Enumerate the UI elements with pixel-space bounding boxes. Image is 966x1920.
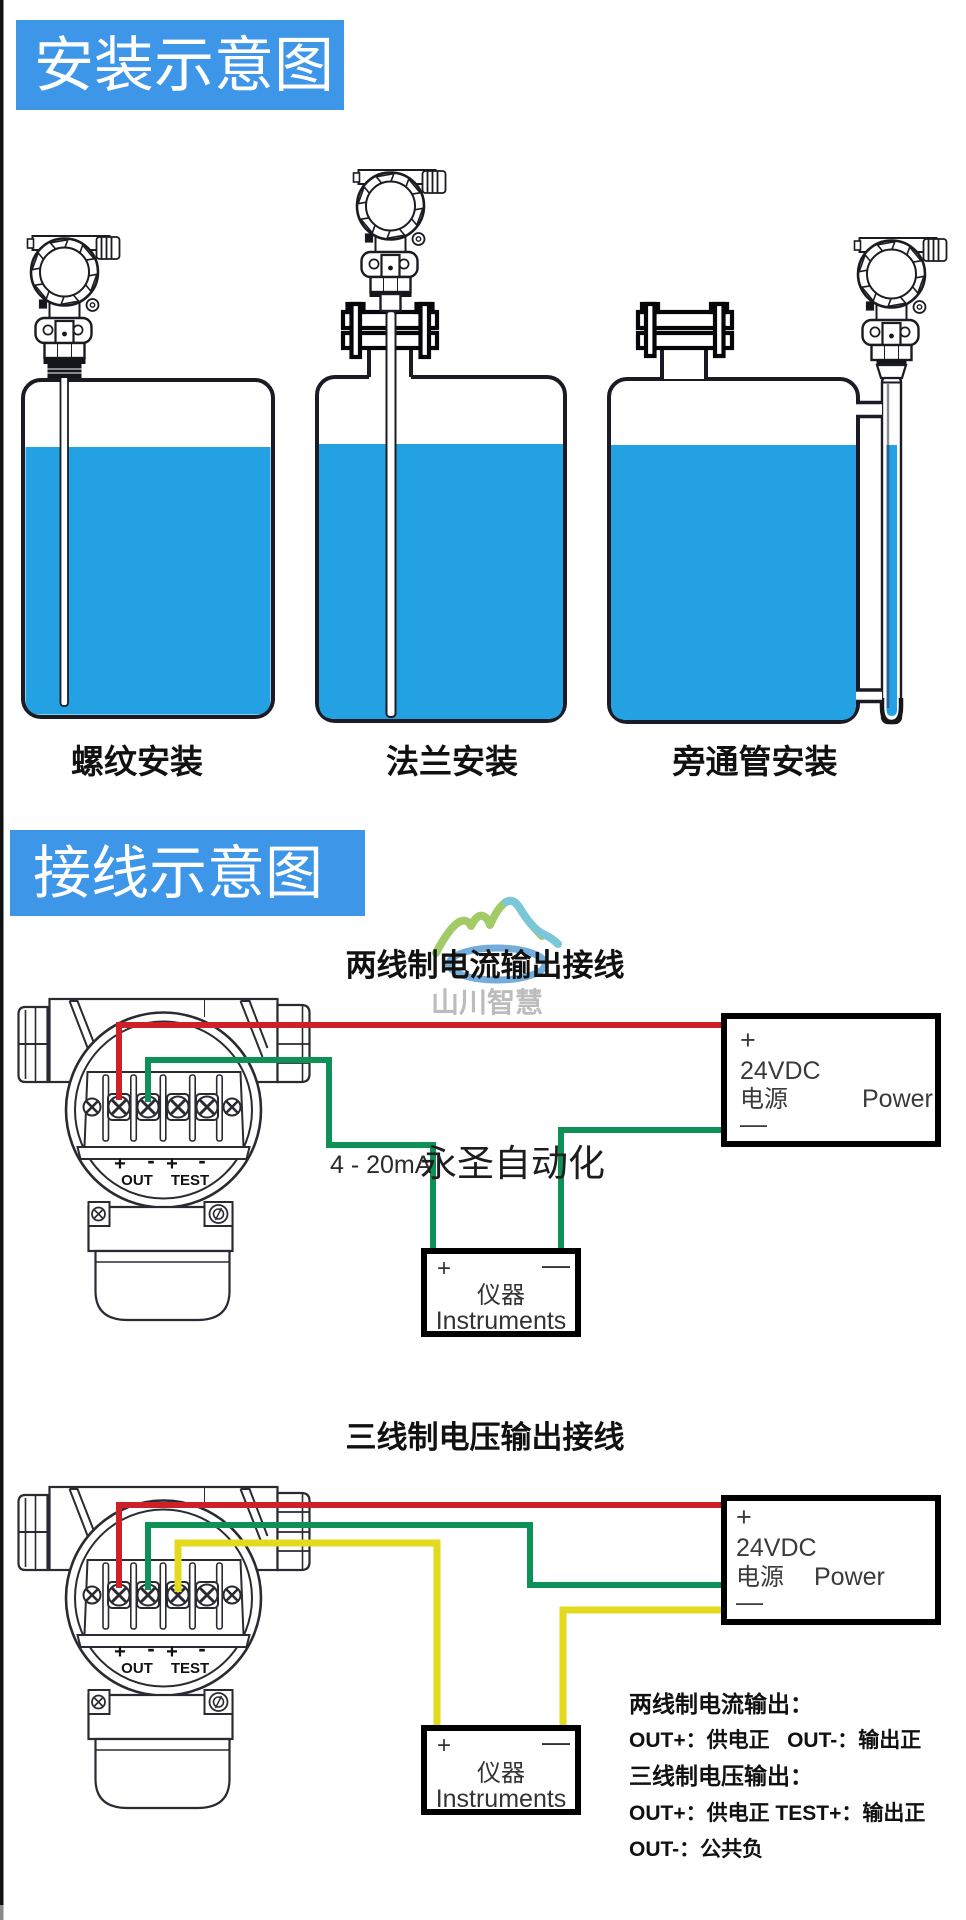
svg-text:螺纹安装: 螺纹安装 <box>71 743 203 780</box>
svg-text:+: + <box>740 1025 756 1055</box>
svg-text:三线制电压输出：: 三线制电压输出： <box>629 1763 813 1789</box>
svg-text:旁通管安装: 旁通管安装 <box>672 743 838 780</box>
svg-text:+: + <box>437 1732 451 1759</box>
svg-text:永圣自动化: 永圣自动化 <box>420 1143 605 1184</box>
svg-text:4 - 20mA: 4 - 20mA <box>330 1151 432 1179</box>
svg-text:24VDC: 24VDC <box>736 1534 817 1562</box>
svg-text:Power: Power <box>862 1085 933 1113</box>
svg-text:山川智慧: 山川智慧 <box>431 987 543 1018</box>
svg-text:法兰安装: 法兰安装 <box>386 743 518 780</box>
svg-text:+: + <box>736 1502 752 1532</box>
svg-text:仪器: 仪器 <box>477 1282 525 1309</box>
svg-text:接线示意图: 接线示意图 <box>33 841 323 906</box>
svg-text:OUT+：供电正 OUT-：输出正: OUT+：供电正 OUT-：输出正 <box>629 1728 921 1752</box>
svg-text:安装示意图: 安装示意图 <box>34 32 334 99</box>
svg-text:Instruments: Instruments <box>436 1307 567 1335</box>
svg-text:OUT+：供电正 TEST+：输出正: OUT+：供电正 TEST+：输出正 <box>629 1801 925 1825</box>
svg-text:三线制电压输出接线: 三线制电压输出接线 <box>346 1420 625 1455</box>
svg-text:—: — <box>740 1109 767 1139</box>
svg-text:OUT-：公共负: OUT-：公共负 <box>629 1838 763 1861</box>
svg-text:两线制电流输出接线: 两线制电流输出接线 <box>346 948 625 983</box>
svg-text:+: + <box>437 1255 451 1282</box>
svg-text:24VDC: 24VDC <box>740 1057 821 1085</box>
svg-text:仪器: 仪器 <box>477 1760 525 1787</box>
svg-text:—: — <box>736 1587 763 1617</box>
svg-text:—: — <box>542 1249 570 1280</box>
svg-text:Instruments: Instruments <box>436 1785 567 1813</box>
svg-text:Power: Power <box>814 1563 885 1591</box>
svg-text:两线制电流输出：: 两线制电流输出： <box>629 1691 813 1717</box>
svg-text:—: — <box>542 1726 570 1757</box>
